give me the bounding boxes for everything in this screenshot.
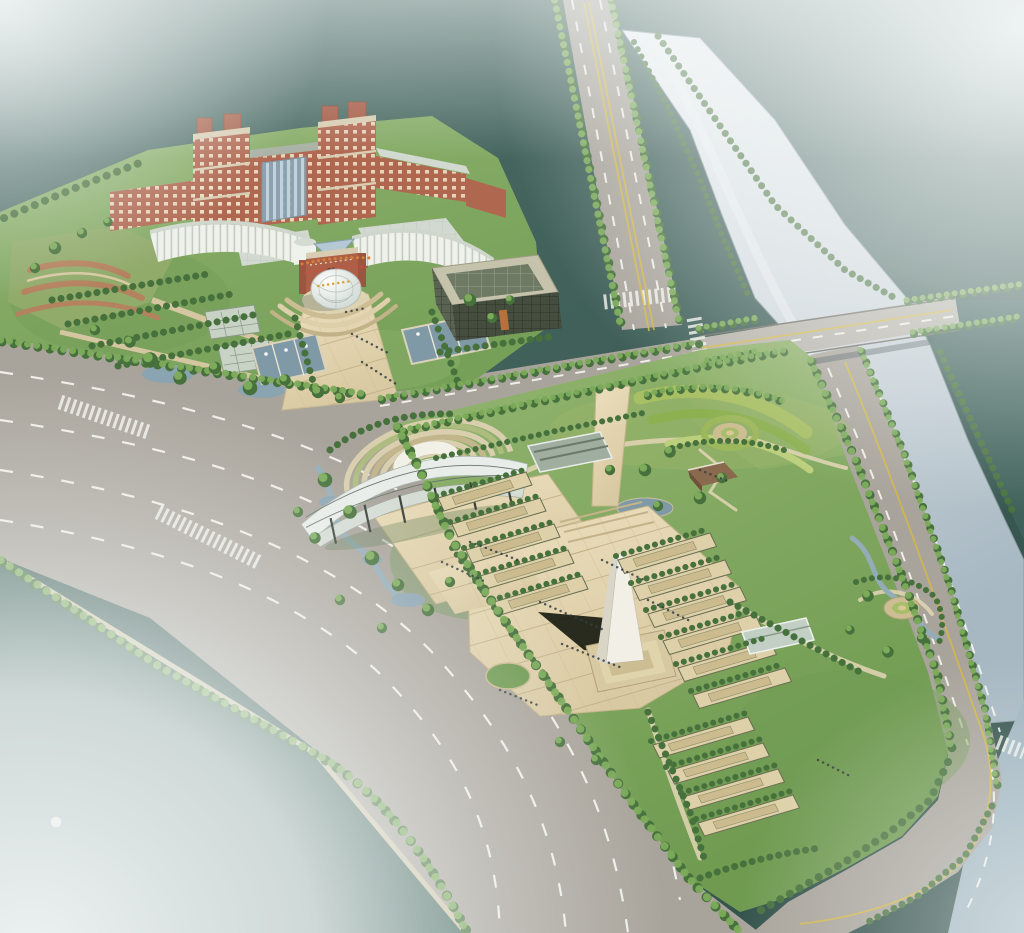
rendering-canvas <box>0 0 1024 933</box>
fog-haze <box>0 0 1024 933</box>
master-plan-rendering <box>0 0 1024 933</box>
